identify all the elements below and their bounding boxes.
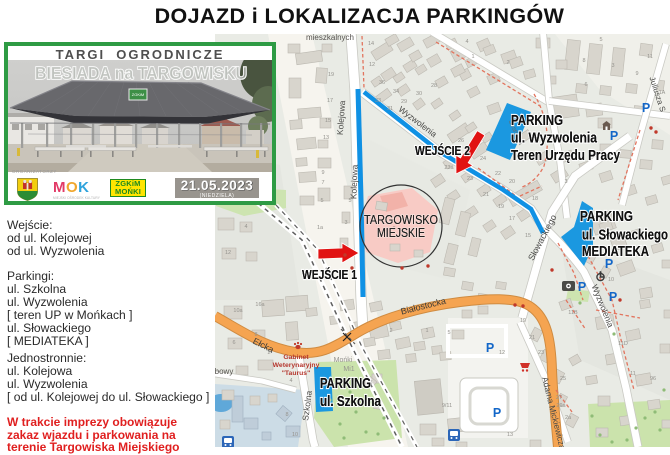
svg-text:PARKING: PARKING xyxy=(580,208,633,225)
svg-text:WEJŚCIE 2: WEJŚCIE 2 xyxy=(415,143,470,158)
svg-text:29: 29 xyxy=(401,99,407,105)
svg-text:P: P xyxy=(610,129,618,143)
svg-text:5: 5 xyxy=(320,198,323,204)
svg-text:23a: 23a xyxy=(444,165,454,171)
svg-text:28: 28 xyxy=(431,83,437,89)
svg-text:30: 30 xyxy=(416,91,422,97)
svg-text:Weterynaryjny: Weterynaryjny xyxy=(273,362,320,369)
svg-text:2: 2 xyxy=(506,60,509,66)
svg-text:PARKING: PARKING xyxy=(320,375,371,392)
svg-text:Mi1: Mi1 xyxy=(343,366,354,373)
svg-text:P: P xyxy=(609,290,617,304)
svg-text:3: 3 xyxy=(564,179,567,185)
svg-text:MIEJSKIE: MIEJSKIE xyxy=(377,226,425,240)
svg-text:BIESIADA na TARGOWISKU: BIESIADA na TARGOWISKU xyxy=(35,63,247,83)
svg-text:11: 11 xyxy=(647,54,653,60)
svg-text:P: P xyxy=(642,101,650,115)
svg-text:8: 8 xyxy=(582,58,585,64)
svg-text:23: 23 xyxy=(538,350,544,356)
svg-text:15: 15 xyxy=(525,233,531,239)
svg-text:21: 21 xyxy=(483,192,489,198)
svg-text:P: P xyxy=(578,280,586,294)
svg-text:9: 9 xyxy=(321,170,324,176)
svg-text:29a: 29a xyxy=(556,403,566,409)
svg-text:16a: 16a xyxy=(255,302,265,308)
svg-text:4: 4 xyxy=(289,378,292,384)
svg-text:10a: 10a xyxy=(233,308,243,314)
svg-text:Gabinet: Gabinet xyxy=(283,354,309,361)
svg-text:Teren Urzędu Pracy: Teren Urzędu Pracy xyxy=(511,147,621,164)
svg-text:1: 1 xyxy=(471,54,474,60)
svg-text:9/11: 9/11 xyxy=(442,403,452,409)
svg-text:ul. Słowackiego: ul. Słowackiego xyxy=(582,227,668,244)
svg-text:22: 22 xyxy=(495,171,501,177)
svg-text:WEJŚCIE 1: WEJŚCIE 1 xyxy=(302,267,357,282)
svg-text:33: 33 xyxy=(375,98,381,104)
svg-text:6: 6 xyxy=(584,82,587,88)
svg-text:3: 3 xyxy=(344,220,347,226)
svg-text:10: 10 xyxy=(292,432,298,438)
svg-text:3: 3 xyxy=(611,63,614,69)
svg-text:27: 27 xyxy=(556,395,562,401)
svg-text:12: 12 xyxy=(499,350,505,356)
svg-text:mieszkalnych: mieszkalnych xyxy=(306,33,354,42)
svg-text:15: 15 xyxy=(325,118,331,124)
svg-text:ZGKiM: ZGKiM xyxy=(132,92,144,97)
svg-text:ul. Wyzwolenia: ul. Wyzwolenia xyxy=(511,130,598,147)
svg-text:11: 11 xyxy=(630,371,636,377)
svg-text:9: 9 xyxy=(635,71,638,77)
svg-text:34: 34 xyxy=(393,89,399,95)
svg-text:"Taurus": "Taurus" xyxy=(282,370,311,377)
svg-text:8: 8 xyxy=(254,332,257,338)
svg-text:12: 12 xyxy=(369,62,375,68)
svg-text:P: P xyxy=(493,406,501,420)
svg-text:5: 5 xyxy=(447,330,450,336)
svg-text:11D: 11D xyxy=(618,341,628,347)
svg-text:P: P xyxy=(486,341,494,355)
svg-text:5: 5 xyxy=(599,37,602,43)
svg-text:20: 20 xyxy=(509,179,515,185)
svg-text:14: 14 xyxy=(368,41,374,47)
svg-text:2: 2 xyxy=(389,328,392,334)
svg-text:25: 25 xyxy=(560,376,566,382)
svg-text:17: 17 xyxy=(509,216,515,222)
svg-text:2a: 2a xyxy=(565,415,572,421)
svg-text:1a: 1a xyxy=(317,225,324,231)
svg-text:2: 2 xyxy=(267,350,270,356)
svg-text:11B: 11B xyxy=(568,310,578,316)
svg-text:1: 1 xyxy=(425,328,428,334)
svg-text:1A: 1A xyxy=(659,90,666,96)
svg-text:Kolejowa: Kolejowa xyxy=(348,164,359,199)
svg-text:13: 13 xyxy=(323,135,329,141)
svg-text:10: 10 xyxy=(608,277,614,283)
svg-text:ul. Szkolna: ul. Szkolna xyxy=(320,393,382,410)
svg-text:TARGOWISKO: TARGOWISKO xyxy=(364,213,438,227)
svg-text:Mońki: Mońki xyxy=(334,357,353,364)
svg-text:13: 13 xyxy=(507,432,513,438)
svg-text:21: 21 xyxy=(529,335,535,341)
svg-text:96: 96 xyxy=(650,376,656,382)
svg-text:5: 5 xyxy=(348,198,351,204)
svg-text:19: 19 xyxy=(498,204,504,210)
svg-text:31: 31 xyxy=(387,106,393,112)
svg-text:19: 19 xyxy=(520,318,526,324)
svg-text:7: 7 xyxy=(321,180,324,186)
svg-text:8: 8 xyxy=(285,412,288,418)
svg-text:4: 4 xyxy=(244,224,247,230)
svg-text:PARKING: PARKING xyxy=(511,112,563,129)
svg-text:MEDIATEKA: MEDIATEKA xyxy=(582,243,649,260)
svg-text:23: 23 xyxy=(467,176,473,182)
svg-text:24: 24 xyxy=(480,156,486,162)
svg-text:4: 4 xyxy=(465,39,468,45)
svg-text:36: 36 xyxy=(379,80,385,86)
svg-text:19: 19 xyxy=(328,72,334,78)
svg-text:17: 17 xyxy=(327,98,333,104)
svg-text:6: 6 xyxy=(232,340,235,346)
svg-text:18: 18 xyxy=(532,196,538,202)
